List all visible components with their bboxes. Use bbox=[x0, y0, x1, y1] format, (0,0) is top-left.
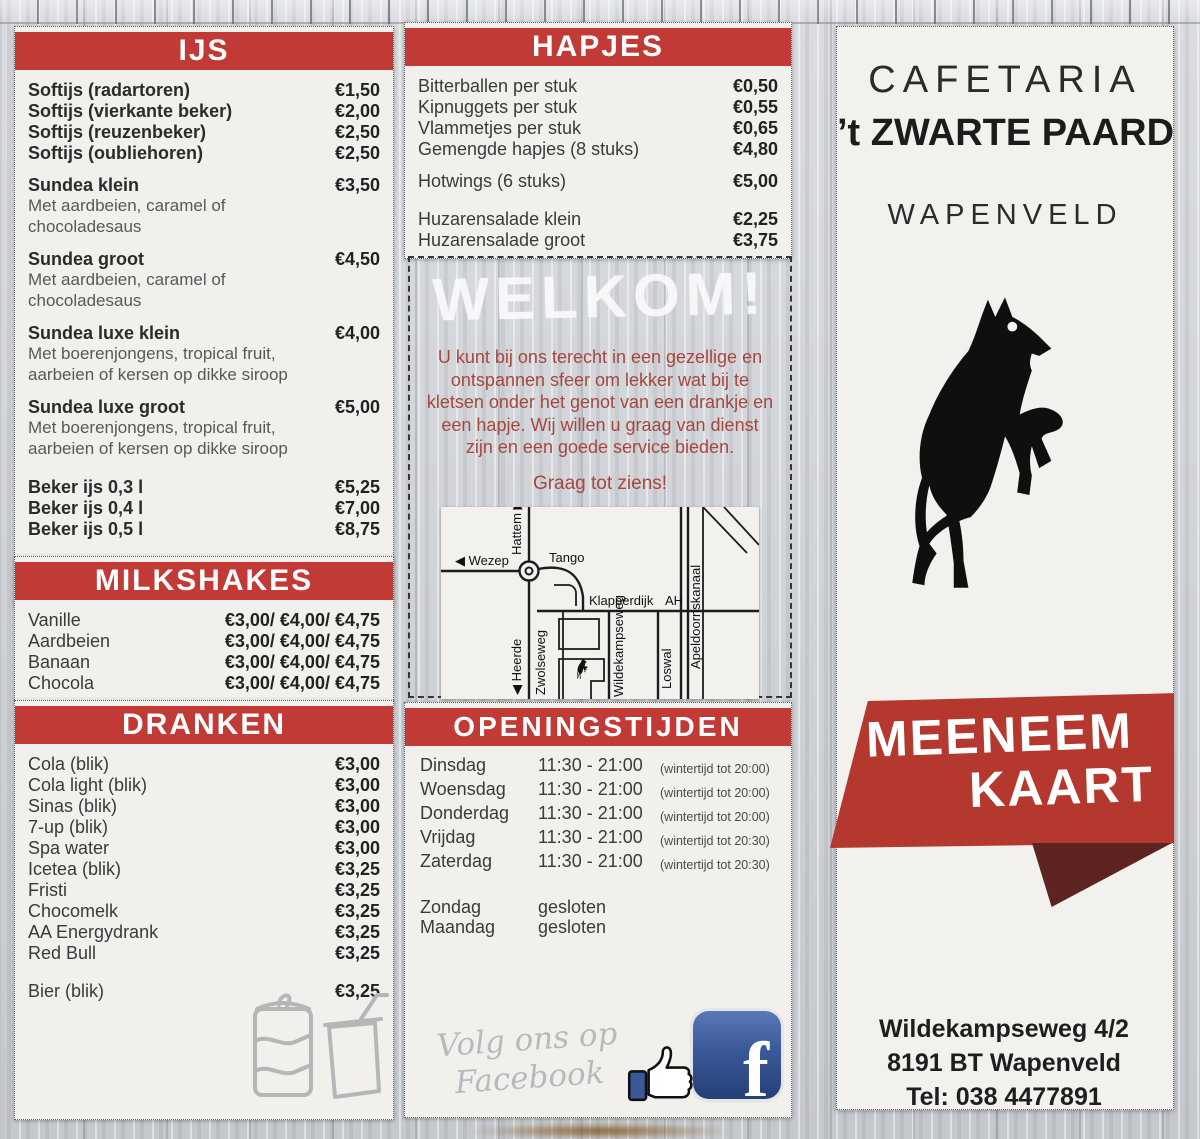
ijs-list: Softijs (radartoren)€1,50Softijs (vierka… bbox=[15, 70, 393, 606]
dranken-list: Cola (blik)€3,00Cola light (blik)€3,00Si… bbox=[15, 744, 393, 1009]
section-ijs-header: IJS bbox=[15, 32, 393, 70]
menu-item: Sundea luxe groot€5,00Met boerenjongens,… bbox=[28, 397, 380, 459]
facebook-f-icon: f bbox=[743, 1025, 769, 1099]
time-value: 11:30 - 21:00 bbox=[538, 779, 660, 803]
item-name: Chocomelk bbox=[28, 901, 118, 921]
item-name: Huzarensalade groot bbox=[418, 230, 585, 250]
menu-item: Beker ijs 0,5 l€8,75 bbox=[28, 519, 380, 539]
menu-item: Banaan€3,00/ €4,00/ €4,75 bbox=[28, 652, 380, 672]
item-price: €3,00/ €4,00/ €4,75 bbox=[225, 631, 380, 651]
item-name: Fristi bbox=[28, 880, 67, 900]
city-label: WAPENVELD bbox=[837, 199, 1173, 232]
item-name: Sundea klein bbox=[28, 175, 139, 195]
banner-line-2: KAART bbox=[829, 756, 1175, 822]
map-label-loswal: Loswal bbox=[659, 648, 674, 689]
milkshakes-list: Vanille€3,00/ €4,00/ €4,75Aardbeien€3,00… bbox=[15, 600, 393, 701]
menu-item: Cola light (blik)€3,00 bbox=[28, 775, 380, 795]
item-price: €0,50 bbox=[733, 76, 778, 96]
map-label-heerde: ◀ Heerde bbox=[509, 638, 524, 694]
menu-item: Huzarensalade groot€3,75 bbox=[418, 230, 778, 250]
item-name: Icetea (blik) bbox=[28, 859, 121, 879]
opening-hours-list: Dinsdag11:30 - 21:00(wintertijd tot 20:0… bbox=[405, 746, 791, 945]
cafetaria-label: CAFETARIA bbox=[837, 59, 1173, 102]
item-name: Cola light (blik) bbox=[28, 775, 147, 795]
item-price: €0,65 bbox=[733, 118, 778, 138]
item-price: €7,00 bbox=[335, 498, 380, 518]
winter-note: (wintertijd tot 20:00) bbox=[660, 803, 770, 827]
menu-item: Beker ijs 0,4 l€7,00 bbox=[28, 498, 380, 518]
item-price: €5,25 bbox=[335, 477, 380, 497]
item-name: Cola (blik) bbox=[28, 754, 109, 774]
menu-item: Softijs (vierkante beker)€2,00 bbox=[28, 101, 380, 121]
item-description: Met aardbeien, caramel of chocoladesaus bbox=[28, 269, 308, 311]
item-name: AA Energydrank bbox=[28, 922, 158, 942]
menu-item: Vlammetjes per stuk€0,65 bbox=[418, 118, 778, 138]
welkom-text: U kunt bij ons terecht in een gezellige … bbox=[426, 346, 774, 459]
map-label-wildekampseweg: Wildekampseweg bbox=[611, 595, 626, 697]
item-name: 7-up (blik) bbox=[28, 817, 108, 837]
table-smudge bbox=[470, 1123, 730, 1139]
section-openingstijden: OPENINGSTIJDEN Dinsdag11:30 - 21:00(wint… bbox=[404, 702, 792, 1118]
item-price: €3,00 bbox=[335, 796, 380, 816]
menu-item: Sinas (blik)€3,00 bbox=[28, 796, 380, 816]
item-description: Met aardbeien, caramel of chocoladesaus bbox=[28, 195, 308, 237]
hours-row: Woensdag11:30 - 21:00(wintertijd tot 20:… bbox=[418, 779, 778, 803]
item-description: Met boerenjongens, tropical fruit, aarbe… bbox=[28, 417, 308, 459]
menu-item: 7-up (blik)€3,00 bbox=[28, 817, 380, 837]
item-name: Sundea luxe groot bbox=[28, 397, 185, 417]
item-price: €3,00/ €4,00/ €4,75 bbox=[225, 610, 380, 630]
day-label: Zondag bbox=[420, 897, 538, 917]
menu-flyer: IJS Softijs (radartoren)€1,50Softijs (vi… bbox=[0, 0, 1200, 1139]
item-name: Vanille bbox=[28, 610, 81, 630]
day-label: Vrijdag bbox=[420, 827, 538, 851]
item-price: €8,75 bbox=[335, 519, 380, 539]
item-price: €3,25 bbox=[335, 880, 380, 900]
day-label: Maandag bbox=[420, 917, 538, 937]
item-name: Red Bull bbox=[28, 943, 96, 963]
menu-item: Icetea (blik)€3,25 bbox=[28, 859, 380, 879]
section-hapjes: HAPJES Bitterballen per stuk€0,50Kipnugg… bbox=[404, 22, 792, 259]
menu-item: Sundea klein€3,50Met aardbeien, caramel … bbox=[28, 175, 380, 237]
item-name: Softijs (vierkante beker) bbox=[28, 101, 232, 121]
item-price: €3,00/ €4,00/ €4,75 bbox=[225, 652, 380, 672]
winter-note: (wintertijd tot 20:00) bbox=[660, 755, 770, 779]
facebook-callout: Volg ons op Facebook f bbox=[438, 1009, 783, 1109]
time-value: 11:30 - 21:00 bbox=[538, 803, 660, 827]
winter-note: (wintertijd tot 20:00) bbox=[660, 779, 770, 803]
winter-note: (wintertijd tot 20:30) bbox=[660, 851, 770, 875]
item-price: €3,00 bbox=[335, 817, 380, 837]
item-price: €3,00 bbox=[335, 754, 380, 774]
item-name: Softijs (oubliehoren) bbox=[28, 143, 203, 163]
address-line: 8191 BT Wapenveld bbox=[836, 1046, 1172, 1080]
map-label-wezep: ◀ Wezep bbox=[455, 553, 509, 568]
address-block: Wildekampseweg 4/28191 BT WapenveldTel: … bbox=[836, 1012, 1172, 1114]
item-price: €4,00 bbox=[335, 323, 380, 343]
menu-item: Cola (blik)€3,00 bbox=[28, 754, 380, 774]
day-label: Woensdag bbox=[420, 779, 538, 803]
section-dranken-header: DRANKEN bbox=[15, 706, 393, 744]
time-value: 11:30 - 21:00 bbox=[538, 851, 660, 875]
item-price: €3,25 bbox=[335, 943, 380, 963]
item-price: €3,50 bbox=[335, 175, 380, 195]
item-name: Gemengde hapjes (8 stuks) bbox=[418, 139, 639, 159]
item-name: Sinas (blik) bbox=[28, 796, 117, 816]
cover-panel: CAFETARIA ’t ZWARTE PAARD WAPENVELD bbox=[836, 26, 1174, 1110]
time-value: gesloten bbox=[538, 917, 660, 937]
time-value: gesloten bbox=[538, 897, 660, 917]
menu-item: Kipnuggets per stuk€0,55 bbox=[418, 97, 778, 117]
item-name: Spa water bbox=[28, 838, 109, 858]
item-name: Bier (blik) bbox=[28, 981, 104, 1001]
hours-row: Zaterdag11:30 - 21:00(wintertijd tot 20:… bbox=[418, 851, 778, 875]
item-price: €2,50 bbox=[335, 143, 380, 163]
item-price: €3,00 bbox=[335, 838, 380, 858]
menu-item: Softijs (radartoren)€1,50 bbox=[28, 80, 380, 100]
wood-plank-edge bbox=[0, 0, 1200, 24]
item-name: Kipnuggets per stuk bbox=[418, 97, 577, 117]
item-name: Softijs (radartoren) bbox=[28, 80, 190, 100]
item-name: Aardbeien bbox=[28, 631, 110, 651]
hours-row: Donderdag11:30 - 21:00(wintertijd tot 20… bbox=[418, 803, 778, 827]
item-price: €2,25 bbox=[733, 209, 778, 229]
hours-row: Zondaggesloten bbox=[418, 897, 778, 917]
item-price: €2,00 bbox=[335, 101, 380, 121]
item-price: €0,55 bbox=[733, 97, 778, 117]
item-name: Beker ijs 0,5 l bbox=[28, 519, 143, 539]
item-price: €3,00/ €4,00/ €4,75 bbox=[225, 673, 380, 693]
hapjes-list: Bitterballen per stuk€0,50Kipnuggets per… bbox=[405, 66, 791, 258]
drink-cans-icon bbox=[229, 985, 389, 1113]
item-price: €1,50 bbox=[335, 80, 380, 100]
hours-row: Vrijdag11:30 - 21:00(wintertijd tot 20:3… bbox=[418, 827, 778, 851]
day-label: Zaterdag bbox=[420, 851, 538, 875]
item-price: €3,25 bbox=[335, 901, 380, 921]
facebook-like-icon bbox=[625, 1043, 711, 1105]
welkom-closing: Graag tot ziens! bbox=[410, 473, 790, 495]
menu-item: Spa water€3,00 bbox=[28, 838, 380, 858]
item-name: Chocola bbox=[28, 673, 94, 693]
item-price: €3,75 bbox=[733, 230, 778, 250]
item-price: €2,50 bbox=[335, 122, 380, 142]
item-name: Bitterballen per stuk bbox=[418, 76, 577, 96]
section-openingstijden-header: OPENINGSTIJDEN bbox=[405, 708, 791, 746]
map-label-ah: AH bbox=[665, 593, 683, 608]
section-hapjes-header: HAPJES bbox=[405, 28, 791, 66]
day-label: Donderdag bbox=[420, 803, 538, 827]
welkom-panel: WELKOM! U kunt bij ons terecht in een ge… bbox=[408, 256, 792, 698]
horse-logo bbox=[883, 275, 1127, 593]
item-name: Sundea groot bbox=[28, 249, 144, 269]
item-name: Beker ijs 0,3 l bbox=[28, 477, 143, 497]
address-line: Wildekampseweg 4/2 bbox=[836, 1012, 1172, 1046]
menu-item: Vanille€3,00/ €4,00/ €4,75 bbox=[28, 610, 380, 630]
item-price: €4,80 bbox=[733, 139, 778, 159]
item-price: €3,25 bbox=[335, 922, 380, 942]
menu-item: Huzarensalade klein€2,25 bbox=[418, 209, 778, 229]
section-dranken: DRANKEN Cola (blik)€3,00Cola light (blik… bbox=[14, 700, 394, 1120]
map-label-zwolseweg: Zwolseweg bbox=[533, 629, 548, 694]
section-milkshakes-header: MILKSHAKES bbox=[15, 562, 393, 600]
item-price: €3,25 bbox=[335, 859, 380, 879]
welkom-title: WELKOM! bbox=[409, 258, 790, 336]
menu-item: Softijs (oubliehoren)€2,50 bbox=[28, 143, 380, 163]
facebook-badge: f bbox=[633, 1009, 783, 1109]
facebook-script-text: Volg ons op Facebook bbox=[436, 1015, 622, 1103]
item-name: Huzarensalade klein bbox=[418, 209, 581, 229]
menu-item: Fristi€3,25 bbox=[28, 880, 380, 900]
map-label-tango: Tango bbox=[549, 550, 584, 565]
item-price: €5,00 bbox=[335, 397, 380, 417]
menu-item: Chocola€3,00/ €4,00/ €4,75 bbox=[28, 673, 380, 693]
menu-item: Red Bull€3,25 bbox=[28, 943, 380, 963]
menu-item: Chocomelk€3,25 bbox=[28, 901, 380, 921]
menu-item: Sundea luxe klein€4,00Met boerenjongens,… bbox=[28, 323, 380, 385]
time-value: 11:30 - 21:00 bbox=[538, 827, 660, 851]
menu-item: Gemengde hapjes (8 stuks)€4,80 bbox=[418, 139, 778, 159]
menu-item: Aardbeien€3,00/ €4,00/ €4,75 bbox=[28, 631, 380, 651]
menu-item: Hotwings (6 stuks)€5,00 bbox=[418, 171, 778, 191]
item-name: Hotwings (6 stuks) bbox=[418, 171, 566, 191]
map-label-apeldoornskanaal: Apeldoornskanaal bbox=[688, 564, 703, 668]
hours-row: Dinsdag11:30 - 21:00(wintertijd tot 20:0… bbox=[418, 755, 778, 779]
item-description: Met boerenjongens, tropical fruit, aarbe… bbox=[28, 343, 308, 385]
item-price: €4,50 bbox=[335, 249, 380, 269]
menu-item: Bitterballen per stuk€0,50 bbox=[418, 76, 778, 96]
meeneem-banner-ribbon: MEENEEM KAART bbox=[830, 690, 1174, 848]
item-name: Softijs (reuzenbeker) bbox=[28, 122, 206, 142]
menu-item: Sundea groot€4,50Met aardbeien, caramel … bbox=[28, 249, 380, 311]
item-name: Sundea luxe klein bbox=[28, 323, 180, 343]
location-map: ◀ Wezep Tango Klapperdijk AH Hattem ▶ ◀ … bbox=[441, 507, 759, 699]
section-ijs: IJS Softijs (radartoren)€1,50Softijs (vi… bbox=[14, 26, 394, 607]
item-price: €3,00 bbox=[335, 775, 380, 795]
address-line: Tel: 038 4477891 bbox=[836, 1080, 1172, 1114]
hours-row: Maandaggesloten bbox=[418, 917, 778, 937]
winter-note: (wintertijd tot 20:30) bbox=[660, 827, 770, 851]
item-price: €5,00 bbox=[733, 171, 778, 191]
day-label: Dinsdag bbox=[420, 755, 538, 779]
menu-item: Beker ijs 0,3 l€5,25 bbox=[28, 477, 380, 497]
map-label-hattem: Hattem ▶ bbox=[509, 507, 524, 555]
business-name: ’t ZWARTE PAARD bbox=[837, 112, 1173, 155]
menu-item: Softijs (reuzenbeker)€2,50 bbox=[28, 122, 380, 142]
meeneem-banner: MEENEEM KAART bbox=[830, 690, 1174, 848]
section-milkshakes: MILKSHAKES Vanille€3,00/ €4,00/ €4,75Aar… bbox=[14, 556, 394, 702]
item-name: Vlammetjes per stuk bbox=[418, 118, 581, 138]
item-name: Beker ijs 0,4 l bbox=[28, 498, 143, 518]
time-value: 11:30 - 21:00 bbox=[538, 755, 660, 779]
menu-item: AA Energydrank€3,25 bbox=[28, 922, 380, 942]
item-name: Banaan bbox=[28, 652, 90, 672]
